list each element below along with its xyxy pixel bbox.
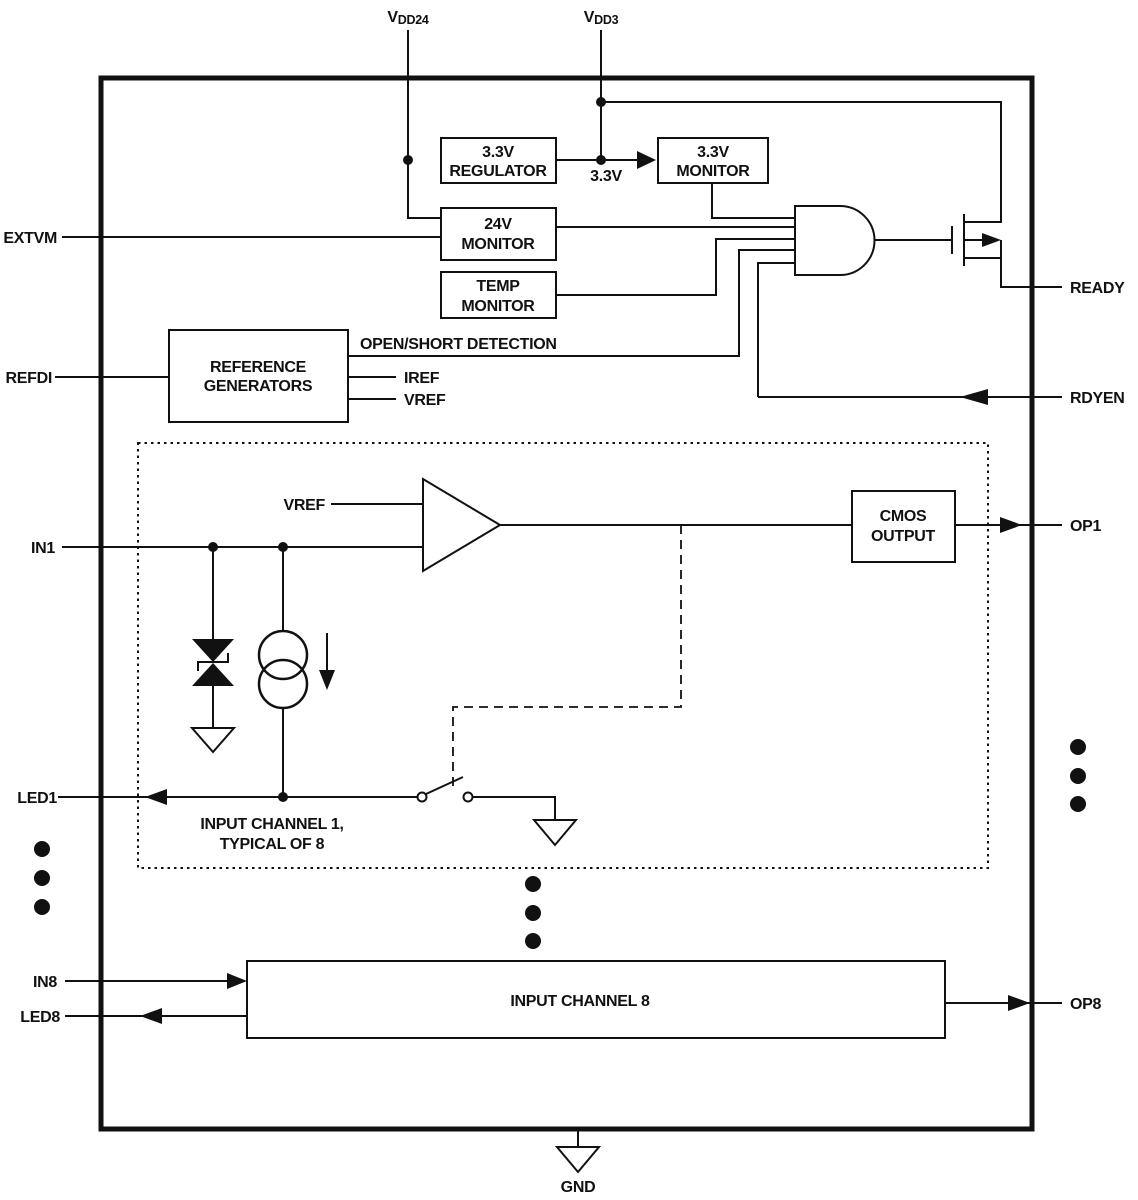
mosfet-arrow-icon bbox=[982, 233, 1001, 247]
left-ellipsis-icon bbox=[34, 841, 50, 915]
iref-label: IREF bbox=[404, 370, 440, 387]
switch-ground-wire bbox=[473, 797, 555, 820]
pin-refdi: REFDI bbox=[5, 370, 169, 387]
arrow-left-icon bbox=[140, 1008, 162, 1024]
cmos-box bbox=[852, 491, 955, 562]
regulator-text-2: REGULATOR bbox=[449, 163, 547, 180]
net-33v-label: 3.3V bbox=[590, 168, 622, 185]
rdyen-label: RDYEN bbox=[1070, 390, 1125, 407]
ground-icon bbox=[192, 728, 234, 752]
ellipsis-dot bbox=[1070, 768, 1086, 784]
junction-dot bbox=[596, 97, 606, 107]
monitor33-text-1: 3.3V bbox=[697, 144, 729, 161]
current-source bbox=[259, 547, 335, 802]
block-temp-monitor: TEMP MONITOR bbox=[441, 272, 556, 318]
extvm-label: EXTVM bbox=[3, 230, 57, 247]
refgen-text-2: GENERATORS bbox=[204, 378, 313, 395]
monitor24-text-2: MONITOR bbox=[461, 236, 535, 253]
current-arrow-down-icon bbox=[319, 670, 335, 690]
block-diagram: VDD24 VDD3 3.3V REGULATOR 3.3V 3.3V MONI… bbox=[0, 0, 1138, 1200]
arrow-right-icon bbox=[227, 973, 247, 989]
pin-op1: OP1 bbox=[955, 517, 1102, 535]
pin-in8: IN8 bbox=[33, 973, 247, 991]
cmos-text-1: CMOS bbox=[880, 508, 927, 525]
block-33v-regulator: 3.3V REGULATOR bbox=[441, 138, 556, 183]
pin-op8: OP8 bbox=[945, 995, 1102, 1013]
switch-control-dashed-wire bbox=[453, 525, 681, 789]
switch-lever bbox=[426, 777, 463, 794]
ground-icon bbox=[557, 1147, 599, 1172]
arrow-left-icon bbox=[960, 389, 988, 405]
arrow-right-icon bbox=[1000, 517, 1022, 533]
pin-vdd24: VDD24 bbox=[387, 9, 441, 218]
block-24v-monitor: 24V MONITOR bbox=[441, 208, 556, 260]
op8-label: OP8 bbox=[1070, 996, 1102, 1013]
pin-in1: IN1 bbox=[31, 540, 423, 557]
middle-ellipsis-icon bbox=[525, 876, 541, 949]
diagram-canvas: VDD24 VDD3 3.3V REGULATOR 3.3V 3.3V MONI… bbox=[0, 0, 1138, 1200]
ellipsis-dot bbox=[34, 870, 50, 886]
vdd24-wire bbox=[408, 30, 441, 218]
led1-label: LED1 bbox=[17, 790, 57, 807]
channel-note-2: TYPICAL OF 8 bbox=[220, 836, 325, 853]
ellipsis-dot bbox=[525, 933, 541, 949]
vref-channel-label: VREF bbox=[284, 497, 326, 514]
gnd-label: GND bbox=[561, 1179, 596, 1196]
monitor-temp-text-1: TEMP bbox=[476, 278, 520, 295]
refgen-box bbox=[169, 330, 348, 422]
arrow-right-icon bbox=[637, 151, 656, 169]
ellipsis-dot bbox=[34, 841, 50, 857]
switch-contact bbox=[464, 793, 473, 802]
switch bbox=[418, 777, 473, 802]
mosfet-source-wire bbox=[964, 258, 1062, 287]
ellipsis-dot bbox=[525, 876, 541, 892]
vref-label: VREF bbox=[404, 392, 446, 409]
temp-to-and-wire bbox=[556, 239, 795, 295]
ellipsis-dot bbox=[1070, 739, 1086, 755]
ready-label: READY bbox=[1070, 280, 1125, 297]
pin-led1: LED1 bbox=[17, 789, 417, 807]
tvs-diode bbox=[192, 547, 234, 752]
monitor-temp-text-2: MONITOR bbox=[461, 298, 535, 315]
vdd24-label: VDD24 bbox=[387, 9, 428, 27]
pin-vdd3: VDD3 bbox=[584, 9, 1001, 222]
refdi-label: REFDI bbox=[5, 370, 52, 387]
open-short-label: OPEN/SHORT DETECTION bbox=[360, 336, 557, 353]
ground-icon bbox=[534, 820, 576, 845]
pin-rdyen: RDYEN bbox=[758, 389, 1125, 407]
monitor33-text-2: MONITOR bbox=[676, 163, 750, 180]
ellipsis-dot bbox=[525, 905, 541, 921]
arrow-left-icon bbox=[145, 789, 167, 805]
in1-label: IN1 bbox=[31, 540, 55, 557]
current-source-circle bbox=[259, 660, 307, 708]
op1-label: OP1 bbox=[1070, 518, 1102, 535]
switch-contact bbox=[418, 793, 427, 802]
arrow-right-icon bbox=[1008, 995, 1030, 1011]
in8-label: IN8 bbox=[33, 974, 57, 991]
channel-note-1: INPUT CHANNEL 1, bbox=[200, 816, 343, 833]
ellipsis-dot bbox=[34, 899, 50, 915]
rdyen-to-and-wire bbox=[758, 263, 795, 397]
block-33v-monitor: 3.3V MONITOR bbox=[658, 138, 768, 183]
pin-gnd: GND bbox=[557, 1129, 599, 1196]
right-ellipsis-icon bbox=[1070, 739, 1086, 812]
monitor24-text-1: 24V bbox=[484, 216, 512, 233]
monitor33-to-and-wire bbox=[712, 183, 795, 218]
junction-dot bbox=[403, 155, 413, 165]
block-cmos-output: CMOS OUTPUT bbox=[852, 491, 955, 562]
current-source-circle bbox=[259, 631, 307, 679]
mosfet bbox=[952, 214, 1062, 287]
pin-led8: LED8 bbox=[20, 1008, 247, 1026]
cmos-text-2: OUTPUT bbox=[871, 528, 936, 545]
regulator-text-1: 3.3V bbox=[482, 144, 514, 161]
block-reference-generators: REFERENCE GENERATORS bbox=[169, 330, 348, 422]
refgen-text-1: REFERENCE bbox=[210, 359, 307, 376]
led8-label: LED8 bbox=[20, 1009, 60, 1026]
pin-extvm: EXTVM bbox=[3, 230, 441, 247]
vdd3-label: VDD3 bbox=[584, 9, 619, 27]
comparator bbox=[423, 479, 500, 571]
channel8-label: INPUT CHANNEL 8 bbox=[510, 993, 650, 1010]
block-input-channel-8: INPUT CHANNEL 8 bbox=[247, 961, 945, 1038]
and-gate bbox=[795, 206, 875, 275]
ellipsis-dot bbox=[1070, 796, 1086, 812]
